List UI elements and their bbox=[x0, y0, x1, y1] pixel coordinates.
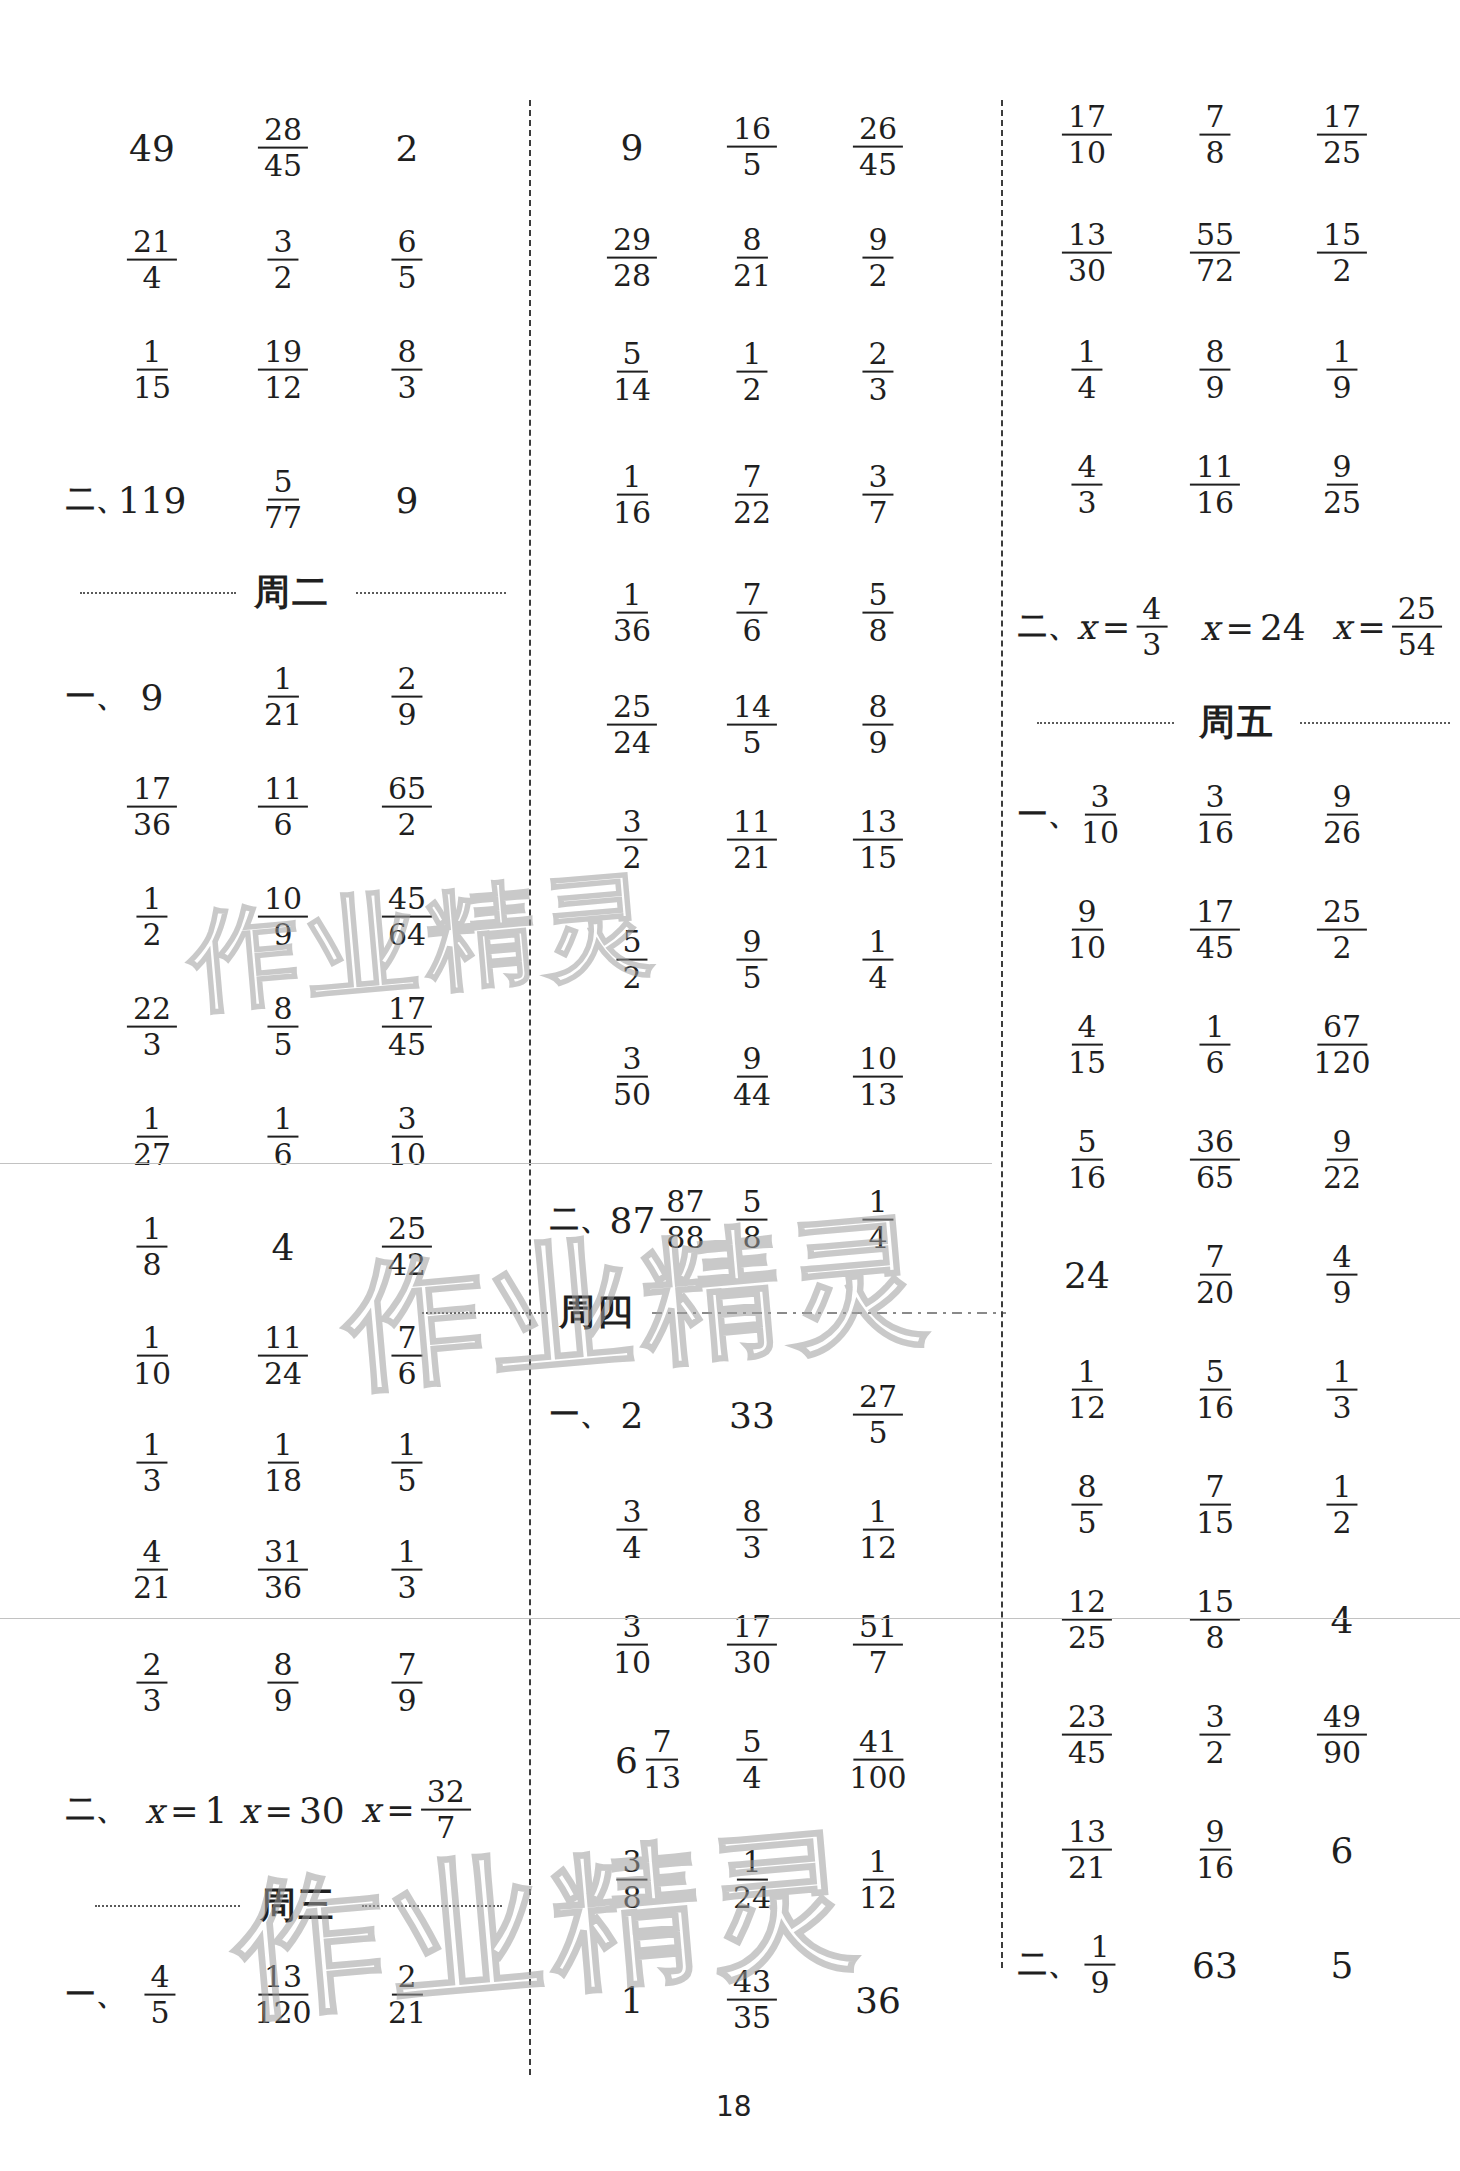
fraction: 145 bbox=[727, 691, 777, 760]
row-label: 二、 bbox=[1018, 1945, 1078, 1985]
fraction: 12 bbox=[736, 338, 767, 407]
fraction: 1736 bbox=[127, 773, 177, 842]
fraction: 310 bbox=[613, 1611, 651, 1680]
answer-cell: 4 bbox=[1331, 1600, 1354, 1641]
answer-cell: 516 bbox=[1068, 1126, 1106, 1195]
answer-cell: 722 bbox=[733, 461, 771, 530]
fraction: 29 bbox=[391, 663, 422, 732]
fraction: 14 bbox=[1071, 336, 1102, 405]
fraction: 45 bbox=[144, 1961, 175, 2030]
fraction: 516 bbox=[1196, 1356, 1234, 1425]
answer-cell: 19 bbox=[1084, 1931, 1115, 2000]
fraction: 1321 bbox=[1062, 1816, 1112, 1885]
variable-x: x bbox=[1200, 607, 1219, 647]
answer-cell: 83 bbox=[391, 336, 422, 405]
fraction: 89 bbox=[1199, 336, 1230, 405]
fraction: 121 bbox=[264, 663, 302, 732]
answer-cell: 34 bbox=[616, 1496, 647, 1565]
fraction: 722 bbox=[733, 461, 771, 530]
answer-cell: 516 bbox=[1196, 1356, 1234, 1425]
answer-cell: 54 bbox=[736, 1726, 767, 1795]
answer-cell: 13 bbox=[1326, 1356, 1357, 1425]
answer-cell: 5 bbox=[1331, 1945, 1354, 1986]
answer-cell: 1912 bbox=[258, 336, 308, 405]
answer-cell: 9 bbox=[396, 480, 419, 521]
answer-cell: 1121 bbox=[727, 806, 777, 875]
fraction: 1116 bbox=[1190, 451, 1240, 520]
column-divider bbox=[1001, 100, 1003, 1968]
fraction: 310 bbox=[1081, 781, 1119, 850]
fraction: 821 bbox=[733, 224, 771, 293]
fraction: 23 bbox=[862, 338, 893, 407]
answer-cell: 12 bbox=[736, 338, 767, 407]
answer-cell: x=43 bbox=[1077, 593, 1168, 662]
fraction: 13 bbox=[391, 1536, 422, 1605]
answer-cell: 18 bbox=[136, 1213, 167, 1282]
answer-cell: 14 bbox=[862, 926, 893, 995]
variable-x: x bbox=[361, 1790, 380, 1830]
answer-cell: 223 bbox=[127, 993, 177, 1062]
variable-x: x bbox=[239, 1790, 258, 1830]
fraction: 85 bbox=[1071, 1471, 1102, 1540]
answer-cell: 5572 bbox=[1190, 219, 1240, 288]
fraction: 3665 bbox=[1190, 1126, 1240, 1195]
answer-cell: 214 bbox=[127, 226, 177, 295]
fraction: 127 bbox=[133, 1103, 171, 1172]
answer-cell: 116 bbox=[613, 461, 651, 530]
section-header: 周二 bbox=[254, 568, 330, 617]
fraction: 23 bbox=[136, 1649, 167, 1718]
answer-cell: 78 bbox=[1199, 101, 1230, 170]
answer-cell: 577 bbox=[264, 466, 302, 535]
fraction: 37 bbox=[862, 461, 893, 530]
answer-cell: 115 bbox=[133, 336, 171, 405]
answer-cell: 12 bbox=[1326, 1471, 1357, 1540]
answer-cell: 910 bbox=[1068, 896, 1106, 965]
header-leader-right bbox=[356, 592, 506, 594]
row-label: 一、 bbox=[66, 677, 126, 717]
fraction: 1225 bbox=[1062, 1586, 1112, 1655]
answer-cell: 89 bbox=[862, 691, 893, 760]
fraction: 910 bbox=[1068, 896, 1106, 965]
answer-cell: 925 bbox=[1323, 451, 1361, 520]
header-leader-left bbox=[1037, 722, 1174, 724]
answer-cell: 92 bbox=[862, 224, 893, 293]
fraction: 715 bbox=[1196, 1471, 1234, 1540]
fraction: 19 bbox=[1084, 1931, 1115, 2000]
fraction: 944 bbox=[733, 1043, 771, 1112]
answer-cell: 9 bbox=[141, 677, 164, 718]
answer-cell: 76 bbox=[736, 579, 767, 648]
page-number: 18 bbox=[716, 2090, 752, 2123]
fraction: 116 bbox=[613, 461, 651, 530]
answer-cell: 23 bbox=[136, 1649, 167, 1718]
fraction: 720 bbox=[1196, 1241, 1234, 1310]
answer-cell: 1315 bbox=[853, 806, 903, 875]
answer-cell: 720 bbox=[1196, 1241, 1234, 1310]
fraction: 67120 bbox=[1313, 1011, 1370, 1080]
answer-cell: 24 bbox=[1064, 1255, 1110, 1296]
fraction: 275 bbox=[853, 1381, 903, 1450]
answer-cell: 3136 bbox=[258, 1536, 308, 1605]
answer-cell: 119 bbox=[118, 480, 187, 521]
scan-artifact-line bbox=[0, 1618, 1460, 1619]
answer-cell: 415 bbox=[1068, 1011, 1106, 1080]
fraction: 78 bbox=[1199, 101, 1230, 170]
fraction: 13 bbox=[136, 1429, 167, 1498]
answer-cell: 6713 bbox=[615, 1726, 681, 1795]
fraction: 43 bbox=[1071, 451, 1102, 520]
fraction: 16 bbox=[267, 1103, 298, 1172]
answer-cell: 49 bbox=[1326, 1241, 1357, 1310]
answer-cell: 14 bbox=[1071, 336, 1102, 405]
fraction: 49 bbox=[1326, 1241, 1357, 1310]
fraction: 2524 bbox=[607, 691, 657, 760]
fraction: 5572 bbox=[1190, 219, 1240, 288]
answer-cell: 4 bbox=[272, 1227, 295, 1268]
answer-cell: 310 bbox=[388, 1103, 426, 1172]
fraction: 1745 bbox=[1190, 896, 1240, 965]
fraction: 316 bbox=[1196, 781, 1234, 850]
answer-cell: 9 bbox=[621, 127, 644, 168]
fraction: 2928 bbox=[607, 224, 657, 293]
fraction: 4990 bbox=[1317, 1701, 1367, 1770]
fraction: 2845 bbox=[258, 114, 308, 183]
answer-cell: x=24 bbox=[1200, 607, 1306, 648]
answer-cell: x=2554 bbox=[1332, 593, 1442, 662]
fraction: 92 bbox=[862, 224, 893, 293]
fraction: 1725 bbox=[1317, 101, 1367, 170]
fraction: 118 bbox=[264, 1429, 302, 1498]
answer-cell: 158 bbox=[1190, 1586, 1240, 1655]
fraction: 152 bbox=[1317, 219, 1367, 288]
fraction: 13 bbox=[1326, 1356, 1357, 1425]
fraction: 925 bbox=[1323, 451, 1361, 520]
answer-cell: 83 bbox=[736, 1496, 767, 1565]
fraction: 89 bbox=[267, 1649, 298, 1718]
answer-cell: 112 bbox=[1068, 1356, 1106, 1425]
answer-cell: 152 bbox=[1317, 219, 1367, 288]
column-divider bbox=[529, 100, 531, 2075]
answer-cell: 1730 bbox=[727, 1611, 777, 1680]
fraction: 43 bbox=[1136, 593, 1167, 662]
workbook-answer-page: 18 49284522143265115191283二、1195779周二一、9… bbox=[0, 0, 1460, 2171]
fraction: 116 bbox=[258, 773, 308, 842]
answer-cell: 79 bbox=[391, 1649, 422, 1718]
header-leader-right bbox=[1300, 722, 1450, 724]
answer-cell: 121 bbox=[264, 663, 302, 732]
answer-cell: 19 bbox=[1326, 336, 1357, 405]
answer-cell: 2928 bbox=[607, 224, 657, 293]
answer-cell: 944 bbox=[733, 1043, 771, 1112]
fraction: 32 bbox=[1199, 1701, 1230, 1770]
fraction: 89 bbox=[862, 691, 893, 760]
fraction: 115 bbox=[133, 336, 171, 405]
answer-cell: 16 bbox=[267, 1103, 298, 1172]
fraction: 2645 bbox=[853, 113, 903, 182]
answer-cell: 2345 bbox=[1062, 1701, 1112, 1770]
answer-cell: x=1 bbox=[145, 1790, 228, 1831]
answer-cell: 1736 bbox=[127, 773, 177, 842]
fraction: 514 bbox=[613, 338, 651, 407]
fraction: 79 bbox=[391, 1649, 422, 1718]
fraction: 14 bbox=[862, 926, 893, 995]
answer-cell: 118 bbox=[264, 1429, 302, 1498]
answer-cell: 112 bbox=[859, 1496, 897, 1565]
answer-cell: 45 bbox=[144, 1961, 175, 2030]
answer-cell: 95 bbox=[736, 926, 767, 995]
answer-cell: x=30 bbox=[239, 1790, 345, 1831]
row-label: 二、 bbox=[1018, 607, 1078, 647]
answer-cell: 252 bbox=[1317, 896, 1367, 965]
variable-x: x bbox=[1077, 607, 1096, 647]
answer-cell: 37 bbox=[862, 461, 893, 530]
fraction: 18 bbox=[136, 1213, 167, 1282]
answer-cell: 1330 bbox=[1062, 219, 1112, 288]
fraction: 223 bbox=[127, 993, 177, 1062]
section-header: 周五 bbox=[1199, 698, 1275, 747]
fraction: 922 bbox=[1323, 1126, 1361, 1195]
fraction: 165 bbox=[727, 113, 777, 182]
answer-cell: 1116 bbox=[1190, 451, 1240, 520]
fraction: 1710 bbox=[1062, 101, 1112, 170]
answer-cell: 6 bbox=[1331, 1830, 1354, 1871]
answer-cell: 15 bbox=[391, 1429, 422, 1498]
variable-x: x bbox=[1332, 607, 1351, 647]
answer-cell: 89 bbox=[1199, 336, 1230, 405]
answer-cell: 127 bbox=[133, 1103, 171, 1172]
answer-cell: 16 bbox=[1199, 1011, 1230, 1080]
fraction: 112 bbox=[859, 1496, 897, 1565]
fraction: 214 bbox=[127, 226, 177, 295]
row-label: 一、 bbox=[66, 1975, 126, 2015]
answer-cell: 916 bbox=[1196, 1816, 1234, 1885]
answer-cell: 58 bbox=[862, 579, 893, 648]
answer-cell: 517 bbox=[853, 1611, 903, 1680]
fraction: 65 bbox=[391, 226, 422, 295]
fraction: 3136 bbox=[258, 1536, 308, 1605]
answer-cell: 23 bbox=[862, 338, 893, 407]
answer-cell: 12 bbox=[136, 883, 167, 952]
answer-cell: 4990 bbox=[1317, 1701, 1367, 1770]
fraction: 83 bbox=[391, 336, 422, 405]
fraction: 1730 bbox=[727, 1611, 777, 1680]
answer-cell: 49 bbox=[129, 128, 175, 169]
fraction: 112 bbox=[1068, 1356, 1106, 1425]
answer-cell: 2845 bbox=[258, 114, 308, 183]
fraction: 76 bbox=[736, 579, 767, 648]
scan-artifact-line bbox=[0, 1163, 992, 1164]
answer-cell: 922 bbox=[1323, 1126, 1361, 1195]
answer-cell: 1725 bbox=[1317, 101, 1367, 170]
fraction: 83 bbox=[736, 1496, 767, 1565]
fraction: 516 bbox=[1068, 1126, 1106, 1195]
fraction: 421 bbox=[133, 1536, 171, 1605]
answer-cell: 821 bbox=[733, 224, 771, 293]
answer-cell: 926 bbox=[1323, 781, 1361, 850]
answer-cell: 2 bbox=[396, 128, 419, 169]
fraction: 110 bbox=[133, 1322, 171, 1391]
fraction: 1330 bbox=[1062, 219, 1112, 288]
answer-cell: 275 bbox=[853, 1381, 903, 1450]
fraction: 95 bbox=[736, 926, 767, 995]
fraction: 252 bbox=[1317, 896, 1367, 965]
answer-cell: 1321 bbox=[1062, 1816, 1112, 1885]
fraction: 41100 bbox=[849, 1726, 906, 1795]
fraction: 350 bbox=[613, 1043, 651, 1112]
variable-x: x bbox=[145, 1790, 164, 1830]
answer-cell: 13 bbox=[136, 1429, 167, 1498]
answer-cell: 1745 bbox=[1190, 896, 1240, 965]
answer-cell: 67120 bbox=[1313, 1011, 1370, 1080]
fraction: 926 bbox=[1323, 781, 1361, 850]
fraction: 16 bbox=[1199, 1011, 1230, 1080]
answer-cell: 110 bbox=[133, 1322, 171, 1391]
fraction: 12 bbox=[136, 883, 167, 952]
answer-cell: 65 bbox=[391, 226, 422, 295]
fraction: 2554 bbox=[1392, 593, 1442, 662]
answer-cell: 145 bbox=[727, 691, 777, 760]
fraction: 310 bbox=[388, 1103, 426, 1172]
answer-cell: 89 bbox=[267, 1649, 298, 1718]
fraction: 1912 bbox=[258, 336, 308, 405]
fraction: 1315 bbox=[853, 806, 903, 875]
fraction: 517 bbox=[853, 1611, 903, 1680]
answer-cell: 63 bbox=[1192, 1945, 1238, 1986]
answer-cell: 1710 bbox=[1062, 101, 1112, 170]
fraction: 54 bbox=[736, 1726, 767, 1795]
row-label: 一、 bbox=[1018, 795, 1078, 835]
answer-cell: 32 bbox=[1199, 1701, 1230, 1770]
fraction: 713 bbox=[643, 1726, 681, 1795]
fraction: 1124 bbox=[258, 1322, 308, 1391]
answer-cell: 514 bbox=[613, 338, 651, 407]
fraction: 12 bbox=[1326, 1471, 1357, 1540]
fraction: 1013 bbox=[853, 1043, 903, 1112]
fraction: 19 bbox=[1326, 336, 1357, 405]
answer-cell: 13 bbox=[391, 1536, 422, 1605]
watermark: 作业精灵 bbox=[183, 847, 666, 1037]
fraction: 577 bbox=[264, 466, 302, 535]
answer-cell: 310 bbox=[613, 1611, 651, 1680]
fraction: 2345 bbox=[1062, 1701, 1112, 1770]
answer-cell: 1124 bbox=[258, 1322, 308, 1391]
answer-cell: 2645 bbox=[853, 113, 903, 182]
answer-cell: 1225 bbox=[1062, 1586, 1112, 1655]
fraction: 34 bbox=[616, 1496, 647, 1565]
answer-cell: 2 bbox=[621, 1395, 644, 1436]
answer-cell: 116 bbox=[258, 773, 308, 842]
answer-cell: 136 bbox=[613, 579, 651, 648]
fraction: 136 bbox=[613, 579, 651, 648]
answer-cell: 43 bbox=[1071, 451, 1102, 520]
answer-cell: 310 bbox=[1081, 781, 1119, 850]
answer-cell: 29 bbox=[391, 663, 422, 732]
fraction: 32 bbox=[267, 226, 298, 295]
fraction: 916 bbox=[1196, 1816, 1234, 1885]
header-leader-left bbox=[80, 592, 236, 594]
fraction: 652 bbox=[382, 773, 432, 842]
fraction: 415 bbox=[1068, 1011, 1106, 1080]
answer-cell: 32 bbox=[267, 226, 298, 295]
answer-cell: 715 bbox=[1196, 1471, 1234, 1540]
answer-cell: 33 bbox=[729, 1395, 775, 1436]
row-label: 二、 bbox=[66, 1790, 126, 1830]
answer-cell: 316 bbox=[1196, 781, 1234, 850]
answer-cell: 421 bbox=[133, 1536, 171, 1605]
answer-cell: 41100 bbox=[849, 1726, 906, 1795]
answer-cell: 1013 bbox=[853, 1043, 903, 1112]
answer-cell: 652 bbox=[382, 773, 432, 842]
answer-cell: 3665 bbox=[1190, 1126, 1240, 1195]
answer-cell: 350 bbox=[613, 1043, 651, 1112]
answer-cell: 2524 bbox=[607, 691, 657, 760]
fraction: 15 bbox=[391, 1429, 422, 1498]
fraction: 158 bbox=[1190, 1586, 1240, 1655]
header-leader-left bbox=[95, 1905, 240, 1907]
fraction: 58 bbox=[862, 579, 893, 648]
answer-cell: 85 bbox=[1071, 1471, 1102, 1540]
answer-cell: 165 bbox=[727, 113, 777, 182]
fraction: 1121 bbox=[727, 806, 777, 875]
